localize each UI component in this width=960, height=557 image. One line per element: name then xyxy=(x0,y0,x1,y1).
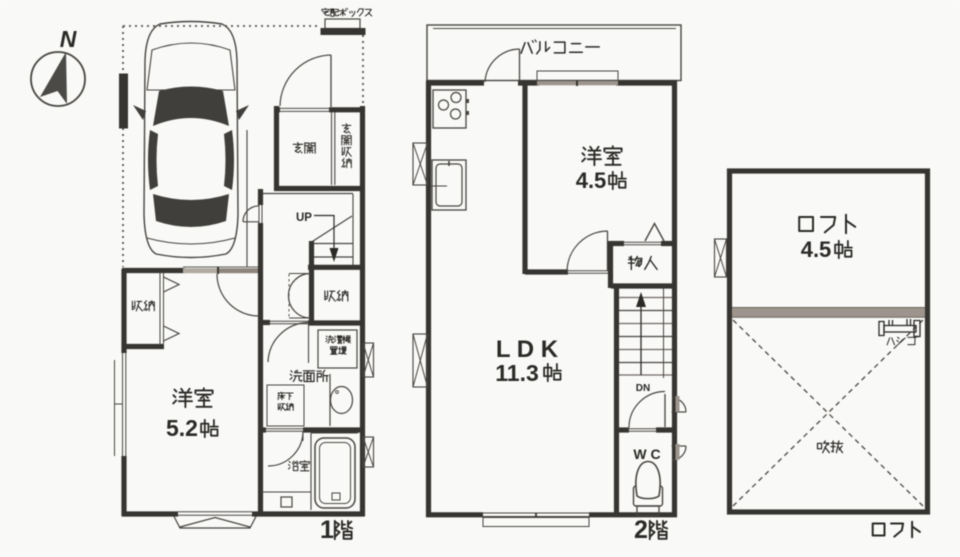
svg-text:4.5: 4.5 xyxy=(576,168,607,193)
svg-text:W C: W C xyxy=(633,446,660,462)
svg-text:11.3: 11.3 xyxy=(495,360,539,386)
svg-text:N: N xyxy=(60,26,77,52)
svg-text:1: 1 xyxy=(320,516,334,544)
svg-text:2: 2 xyxy=(634,516,648,544)
svg-text:UP: UP xyxy=(296,212,312,224)
svg-text:5.2: 5.2 xyxy=(166,415,198,441)
svg-text:4.5: 4.5 xyxy=(801,237,832,262)
svg-text:L D K: L D K xyxy=(496,336,559,363)
svg-text:DN: DN xyxy=(636,383,650,394)
